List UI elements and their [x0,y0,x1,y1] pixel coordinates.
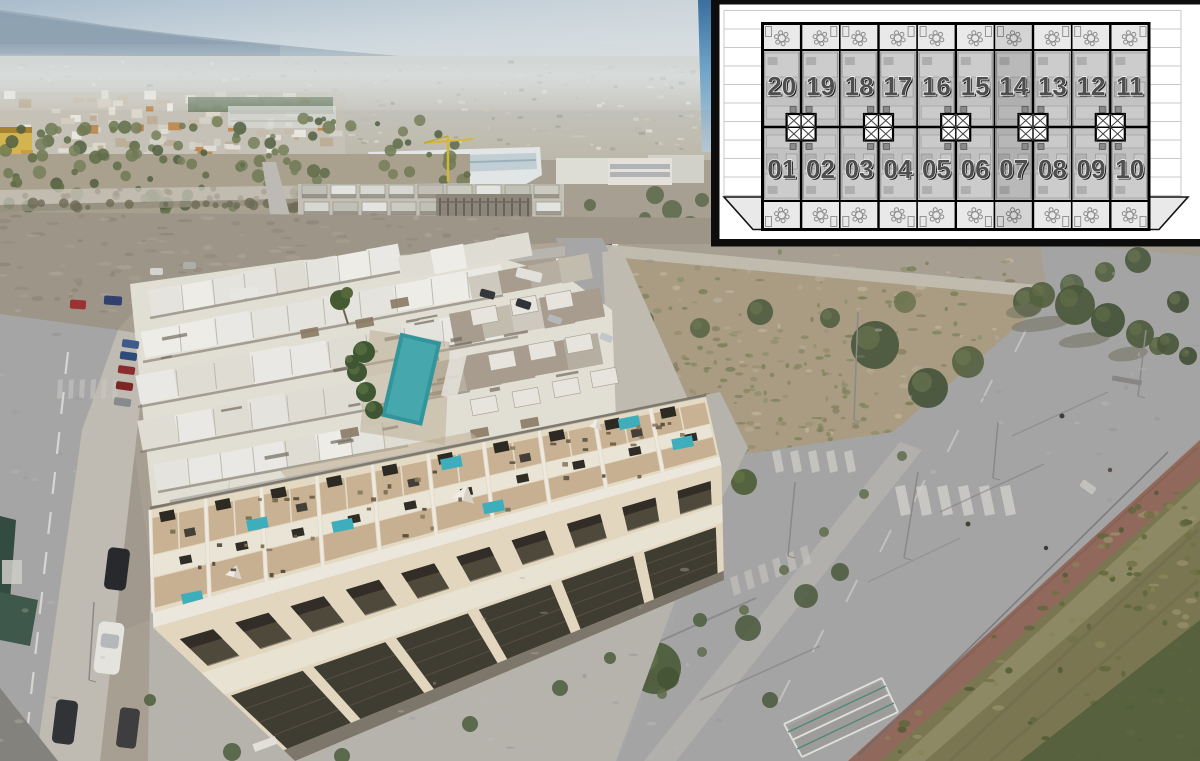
svg-text:10: 10 [1115,154,1144,184]
svg-text:06: 06 [961,154,990,184]
svg-text:17: 17 [883,71,912,101]
svg-text:08: 08 [1038,154,1067,184]
svg-text:15: 15 [961,71,990,101]
svg-text:09: 09 [1077,154,1106,184]
svg-text:18: 18 [845,71,874,101]
svg-text:13: 13 [1038,71,1067,101]
svg-text:05: 05 [922,154,951,184]
svg-text:04: 04 [883,154,912,184]
svg-text:14: 14 [999,71,1028,101]
svg-text:03: 03 [845,154,874,184]
svg-text:01: 01 [767,154,796,184]
svg-text:11: 11 [1116,71,1144,101]
svg-text:19: 19 [806,71,835,101]
svg-text:20: 20 [767,71,796,101]
svg-text:12: 12 [1077,71,1106,101]
svg-text:07: 07 [999,154,1028,184]
svg-text:02: 02 [806,154,835,184]
svg-text:16: 16 [922,71,951,101]
